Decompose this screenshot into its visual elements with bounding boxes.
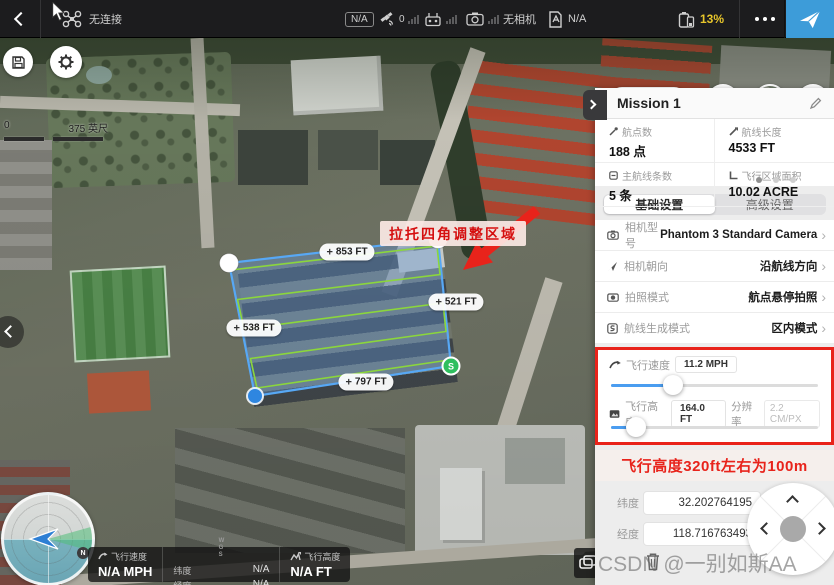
speed-slider[interactable] <box>611 384 818 387</box>
route-mode-icon <box>607 323 618 334</box>
stat-waypoints: 航点数 188 点 <box>595 119 715 163</box>
chevron-right-icon: › <box>821 228 826 242</box>
wgs-label: WGS <box>219 538 225 559</box>
speed-value: 11.2 MPH <box>675 356 737 373</box>
altitude-slider-thumb[interactable] <box>626 417 646 437</box>
setting-camera-heading[interactable]: 相机朝向 沿航线方向 › <box>595 251 834 282</box>
corner-handle-bottom-left[interactable] <box>247 388 263 404</box>
waypoint-icon <box>609 127 618 136</box>
airplane-icon <box>799 9 821 29</box>
longitude-input[interactable] <box>643 522 761 546</box>
lines-count-icon <box>609 171 618 180</box>
dpad-center-button[interactable] <box>780 516 806 542</box>
sd-status: N/A <box>548 0 586 38</box>
setting-route-generation-mode[interactable]: 航线生成模式 区内模式 › <box>595 313 834 344</box>
area-icon <box>729 171 738 180</box>
aircraft-status: 无连接 <box>62 0 122 38</box>
sd-card-icon <box>548 11 563 28</box>
battery-status: 13% <box>678 0 724 38</box>
telemetry-bar: 飞行速度 N/A MPH WGS 纬度N/A 经度N/A 飞行高度 N/A FT <box>88 547 350 582</box>
save-icon <box>11 55 26 70</box>
flight-sliders-section: 飞行速度 11.2 MPH 飞行高度 164.0 FT 分辨率 2.2 CM/P… <box>595 347 834 445</box>
speed-icon <box>609 360 621 370</box>
start-point-marker[interactable]: S <box>443 358 460 375</box>
edge-distance-label-top[interactable]: +853 FT <box>319 244 374 261</box>
setting-camera-model[interactable]: 相机型号 Phantom 3 Standard Camera › <box>595 220 834 251</box>
flight-mode-badge: N/A <box>345 0 374 38</box>
mission-area-polygon[interactable] <box>229 239 451 396</box>
stat-main-lines: 主航线条数 5 条 <box>595 163 715 207</box>
satellite-icon <box>380 12 396 27</box>
mission-stats: 航点数 188 点 航线长度 4533 FT 主航线条数 5 条 飞行区域面积 … <box>595 119 834 186</box>
dpad-left-button[interactable] <box>760 522 773 535</box>
latitude-input[interactable] <box>643 491 761 515</box>
nudge-dpad <box>747 483 834 575</box>
route-length-icon <box>729 127 738 136</box>
chevron-right-icon: › <box>821 290 826 304</box>
telemetry-speed: 飞行速度 N/A MPH <box>88 547 162 582</box>
chevron-left-icon <box>14 12 28 26</box>
altitude-value: 164.0 FT <box>671 400 726 428</box>
altitude-note-annotation: 飞行高度320ft左右为100m <box>595 450 834 481</box>
battery-icon <box>678 11 695 28</box>
ellipsis-icon <box>755 17 775 21</box>
heading-icon <box>607 261 618 272</box>
top-status-bar: 无连接 N/A 0 无相机 N/A 13% <box>0 0 834 38</box>
altitude-icon <box>290 552 301 561</box>
capture-icon <box>607 292 619 302</box>
gps-status: 0 <box>380 0 419 38</box>
mission-title: Mission 1 <box>617 95 809 111</box>
camera-signal-bars <box>488 14 499 24</box>
mission-header: Mission 1 <box>595 88 834 119</box>
telemetry-position: WGS 纬度N/A 经度N/A <box>162 547 279 582</box>
drone-icon <box>62 10 82 28</box>
drag-icon: + <box>435 296 441 308</box>
edge-distance-label-right[interactable]: +521 FT <box>428 294 483 311</box>
map-settings-button[interactable] <box>50 46 82 78</box>
edge-distance-label-left[interactable]: +538 FT <box>226 320 281 337</box>
chevron-right-icon <box>587 100 597 110</box>
edit-pencil-icon[interactable] <box>809 97 822 110</box>
app-root: S +853 FT +521 FT +538 FT +797 FT 拉托四角调整… <box>0 0 834 585</box>
camera-icon <box>607 230 619 240</box>
gps-signal-bars <box>408 14 419 24</box>
chevron-left-icon <box>4 325 17 338</box>
camera-status: 无相机 <box>466 0 536 38</box>
back-button[interactable] <box>0 0 40 38</box>
mission-panel: Mission 1 航点数 188 点 航线长度 4533 FT 主航线条数 5… <box>595 88 834 585</box>
remote-controller-icon <box>424 12 442 27</box>
panel-collapse-handle[interactable] <box>583 90 607 120</box>
coordinates-section: 纬度 经度 <box>595 481 834 585</box>
save-mission-button[interactable] <box>3 47 33 77</box>
attitude-compass: N <box>1 492 95 585</box>
dpad-right-button[interactable] <box>813 522 826 535</box>
delete-mission-button[interactable] <box>645 552 661 571</box>
altitude-slider[interactable] <box>611 426 818 429</box>
drag-icon: + <box>345 376 351 388</box>
more-menu-button[interactable] <box>751 0 779 38</box>
rc-status <box>424 0 457 38</box>
map-scale-bar: 0 375 英尺 <box>4 120 108 141</box>
settings-list: 相机型号 Phantom 3 Standard Camera › 相机朝向 沿航… <box>595 220 834 344</box>
scale-label: 375 英尺 <box>69 120 108 135</box>
svg-text:S: S <box>448 362 454 372</box>
corner-handle-top-left[interactable] <box>220 254 239 273</box>
chevron-right-icon: › <box>821 321 826 335</box>
speed-slider-row: 飞行速度 11.2 MPH <box>609 356 820 398</box>
speed-slider-thumb[interactable] <box>663 375 683 395</box>
tutorial-annotation: 拉托四角调整区域 <box>380 221 526 246</box>
setting-capture-mode[interactable]: 拍照模式 航点悬停拍照 › <box>595 282 834 313</box>
telemetry-altitude: 飞行高度 N/A FT <box>279 547 350 582</box>
stat-route-length: 航线长度 4533 FT <box>715 119 834 163</box>
drag-icon: + <box>233 322 239 334</box>
stat-area: 飞行区域面积 10.02 ACRE <box>715 163 834 207</box>
stats-page-dots[interactable] <box>756 177 796 183</box>
rc-signal-bars <box>446 14 457 24</box>
chevron-right-icon: › <box>821 259 826 273</box>
altitude-icon <box>609 409 620 419</box>
dpad-up-button[interactable] <box>786 495 799 508</box>
resolution-value: 2.2 CM/PX <box>764 400 820 428</box>
scale-zero: 0 <box>4 120 10 135</box>
aircraft-heading-icon <box>28 525 62 553</box>
speed-icon <box>98 552 108 561</box>
takeoff-button[interactable] <box>786 0 834 38</box>
edge-distance-label-bottom[interactable]: +797 FT <box>338 374 393 391</box>
gear-icon <box>57 53 75 71</box>
altitude-slider-row: 飞行高度 164.0 FT 分辨率 2.2 CM/PX <box>609 398 820 440</box>
trash-icon <box>645 552 661 571</box>
drag-icon: + <box>326 246 332 258</box>
camera-icon <box>466 12 484 26</box>
